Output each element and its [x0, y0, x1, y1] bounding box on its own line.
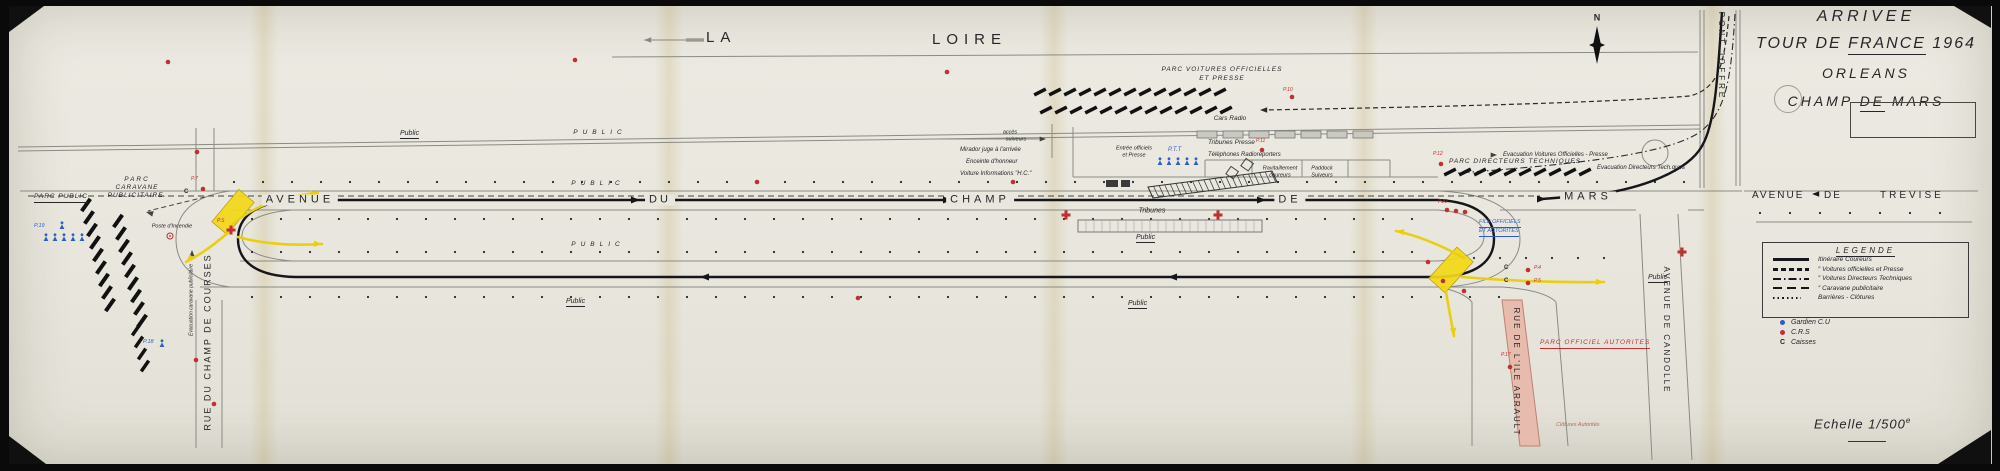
public-nord-label: PUBLIC — [571, 181, 624, 188]
parc-caravane-3-label: PUBLICITAIRE. — [108, 193, 167, 200]
paddock-1-label: Paddock — [1311, 166, 1332, 172]
crs-post-dot-icon — [1463, 210, 1468, 215]
avenue-mars-label: MARS — [1560, 192, 1616, 203]
scale-label: Echelle 1/500e — [1814, 416, 1911, 431]
marker-dot-icon — [1780, 330, 1785, 335]
tribunes-label: Tribunes — [1139, 208, 1166, 215]
empty-cartouche-box — [1850, 102, 1976, 138]
north-compass-icon — [1589, 26, 1605, 64]
crs-post-dot-icon — [1439, 162, 1444, 167]
crs-post-dot-icon — [1290, 95, 1295, 100]
gardien-figure-icon — [1158, 157, 1163, 165]
ravitaillement-1-label: Ravitaillement — [1263, 166, 1298, 172]
public-candolle-label: Public — [1648, 274, 1667, 283]
parc-officiel-autorites-label: PARC OFFICIEL AUTORITES — [1540, 340, 1650, 349]
first-aid-cross-icon — [1678, 248, 1687, 257]
legend-marker: CCaisses — [1780, 337, 1830, 347]
crs-post-dot-icon — [1526, 281, 1531, 286]
p7-label: P.7 — [191, 177, 198, 182]
caisse-c-3-label: C — [184, 189, 188, 195]
gardien-figure-icon — [1185, 157, 1190, 165]
page-title: ARRIVEE — [1744, 8, 1988, 26]
legend-row-label: Itinéraire Coureurs — [1818, 256, 1872, 263]
crs-post-dot-icon — [1454, 209, 1459, 214]
rue-de-lile-arrault-label: RUE DE L'ILE ARRAULT — [1512, 308, 1520, 437]
acces-suiveurs-1-label: accès — [1003, 130, 1017, 136]
parc-directeurs-techniques-label: PARC DIRECTEURS TECHNIQUES — [1449, 159, 1581, 166]
legend-row-dotted: Barrières - Clôtures — [1773, 293, 1968, 303]
p19-label: P.19 — [34, 224, 45, 230]
p4-label: P.4 — [1534, 266, 1541, 271]
p12-label: P.12 — [1433, 152, 1443, 157]
gardien-figure-icon — [60, 221, 65, 229]
ps-label: P.S — [217, 219, 224, 224]
first-aid-cross-icon — [1214, 211, 1223, 220]
entree-officiels-2-label: et Presse — [1122, 153, 1145, 159]
crs-post-dot-icon — [1011, 180, 1016, 185]
evacuation-directeurs-label: Evacuation Directeurs Tech.ques — [1597, 165, 1685, 171]
pont-joffre-label: PONT JOFFRE — [1717, 12, 1725, 100]
caisse-c-2-label: C — [1504, 278, 1508, 284]
parc-voitures-officielles-2-label: ET PRESSE — [1199, 76, 1244, 83]
entree-officiels-1-label: Entrée officiels — [1116, 146, 1152, 152]
avenue-du-label: DU — [645, 195, 675, 206]
ptt-label: P.T.T — [1168, 147, 1181, 153]
public-median-est-label: Public — [1136, 234, 1155, 243]
p11-label: P.11 — [1256, 139, 1265, 144]
crs-post-dot-icon — [166, 60, 171, 65]
gardien-figure-icon — [62, 233, 67, 241]
crs-post-dot-icon — [1441, 279, 1446, 284]
scanned-map-tour-de-france-1964: LALOIREPARC VOITURES OFFICIELLESET PRESS… — [0, 0, 2000, 471]
marker-dot-icon — [1780, 320, 1785, 325]
clotures-autorites-label: Clôtures Autorités — [1556, 423, 1600, 429]
la-loire-la-label: LA — [706, 30, 736, 45]
gardien-figure-icon — [1167, 157, 1172, 165]
legend-row-dashdot: ″ Voitures Directeurs Techniques — [1773, 274, 1968, 284]
p5-label: P.5 — [1534, 279, 1541, 284]
legend-rows: Itinéraire Coureurs″ Voitures officielle… — [1763, 255, 1968, 303]
crs-post-dot-icon — [1426, 260, 1431, 265]
public-quai-2-label: PUBLIC — [573, 130, 626, 137]
legend-marker-label: Gardien C.U — [1791, 319, 1830, 326]
avenue-champ-label: CHAMP — [946, 195, 1014, 206]
crs-post-dot-icon — [755, 180, 760, 185]
crs-post-dot-icon — [1526, 268, 1531, 273]
crs-post-dot-icon — [201, 187, 206, 192]
legend-symbol-longdash-icon — [1773, 287, 1809, 289]
roundabout-circle — [1774, 85, 1802, 113]
la-loire-loire-label: LOIRE — [932, 32, 1007, 47]
file-officiels-1-label: FILE OFFICIELS — [1479, 220, 1521, 228]
crs-post-dot-icon — [1445, 208, 1450, 213]
acces-suiveurs-2-label: suiveurs — [1006, 137, 1026, 143]
legend-row-solid: Itinéraire Coureurs — [1773, 255, 1968, 265]
p22-label: P.22 — [1438, 200, 1448, 205]
crs-post-dot-icon — [945, 70, 950, 75]
evacuation-caravane-label: Evacuation caravane publicitaire — [190, 264, 195, 336]
enceinte-honneur-label: Enceinte d'honneur — [966, 159, 1018, 165]
legend-symbol-dashdot-icon — [1773, 278, 1809, 280]
public-median-label: PUBLIC — [571, 242, 624, 249]
rue-du-champ-de-courses-label: RUE DU CHAMP DE COURSES — [204, 253, 213, 430]
paddock-2-label: Suiveurs — [1311, 173, 1332, 179]
avenue-de-label: DE — [1274, 195, 1305, 206]
evacuation-voitures-label: Evacuation Voitures Officielles - Presse — [1503, 152, 1608, 158]
legend-symbol-dotted-icon — [1773, 297, 1801, 299]
p18-label: P.18 — [143, 340, 154, 346]
caisse-letter-icon: C — [1780, 339, 1785, 346]
caisse-c-1-label: C — [1504, 265, 1508, 271]
parc-caravane-1-label: PARC — [124, 177, 150, 184]
first-aid-cross-icon — [1062, 211, 1071, 220]
title-city: ORLEANS — [1744, 65, 1988, 81]
voiture-informations-label: Voiture Informations "H.C." — [960, 171, 1031, 177]
poste-incendie-label: Poste d'Incendie — [152, 224, 193, 230]
tribunes-presse-label: Tribunes Presse — [1208, 140, 1255, 147]
legend-marker-label: C.R.S — [1791, 329, 1810, 336]
gardien-figure-icon — [53, 233, 58, 241]
crs-post-dot-icon — [856, 296, 861, 301]
mirador-juge-label: Mirador juge à l'arrivée — [960, 147, 1021, 153]
legend-symbol-dashed-icon — [1773, 268, 1809, 271]
crs-post-dot-icon — [1462, 289, 1467, 294]
parc-voitures-officielles-1-label: PARC VOITURES OFFICIELLES — [1162, 67, 1283, 74]
compass-n-label: N — [1594, 14, 1601, 23]
file-officiels-2-label: ET AUTORITES — [1479, 229, 1519, 237]
public-sud-label: Public — [566, 298, 585, 307]
crs-post-dot-icon — [195, 150, 200, 155]
avenue-label: AVENUE — [262, 195, 338, 206]
gardien-figure-icon — [71, 233, 76, 241]
crs-post-dot-icon — [194, 358, 199, 363]
legend-row-label: ″ Voitures Directeurs Techniques — [1818, 275, 1912, 282]
p17-label: P.17 — [1501, 353, 1511, 358]
p10-label: P.10 — [1283, 88, 1293, 93]
legend-row-dashed: ″ Voitures officielles et Presse — [1773, 265, 1968, 275]
legend: LEGENDE Itinéraire Coureurs″ Voitures of… — [1762, 242, 1969, 318]
ravitaillement-2-label: coureurs — [1269, 173, 1290, 179]
map-linework — [0, 0, 2000, 471]
legend-marker: C.R.S — [1780, 327, 1830, 337]
telephones-radioreporters-label: Téléphones Radioreporters — [1208, 152, 1281, 158]
cars-radio-label: Cars Radio — [1214, 116, 1247, 123]
trevise-trevise-label: TREVISE — [1880, 191, 1944, 201]
legend-markers: Gardien C.UC.R.SCCaisses — [1780, 317, 1830, 347]
gardien-figure-icon — [1176, 157, 1181, 165]
legend-row-label: Barrières - Clôtures — [1818, 294, 1874, 301]
gardien-figure-icon — [1194, 157, 1199, 165]
scale-underline — [1848, 441, 1886, 442]
legend-marker-label: Caisses — [1791, 339, 1816, 346]
gardien-figure-icon — [44, 233, 49, 241]
parc-caravane-2-label: CARAVANE — [115, 185, 158, 192]
legend-marker: Gardien C.U — [1780, 317, 1830, 327]
legend-row-label: ″ Voitures officielles et Presse — [1818, 266, 1904, 273]
gardien-figure-icon — [160, 339, 165, 347]
legend-row-longdash: ″ Caravane publicitaire — [1773, 284, 1968, 294]
crs-post-dot-icon — [573, 58, 578, 63]
public-sud-est-label: Public — [1128, 300, 1147, 309]
parc-public-label: PARC PUBLIC — [34, 194, 88, 203]
legend-title: LEGENDE — [1763, 246, 1968, 255]
trevise-avenue-label: AVENUE — [1752, 191, 1804, 201]
gardien-figure-icon — [80, 233, 85, 241]
trevise-de-label: DE — [1824, 191, 1842, 201]
page-subtitle: TOUR DE FRANCE 1964 — [1744, 35, 1988, 53]
legend-row-label: ″ Caravane publicitaire — [1818, 285, 1883, 292]
public-quai-label: Public — [400, 130, 419, 139]
avenue-de-candolle-label: AVENUE DE CANDOLLE — [1662, 267, 1670, 394]
legend-symbol-solid-icon — [1773, 258, 1809, 261]
